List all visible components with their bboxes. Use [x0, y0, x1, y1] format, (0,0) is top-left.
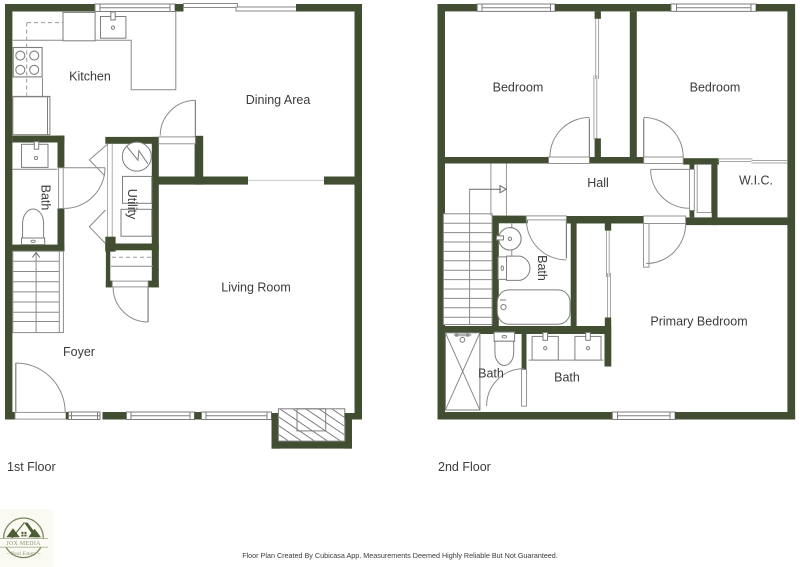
svg-text:Bath: Bath: [535, 255, 549, 281]
svg-text:Foyer: Foyer: [63, 345, 95, 359]
svg-text:Primary Bedroom: Primary Bedroom: [650, 315, 747, 329]
svg-text:2nd Floor: 2nd Floor: [438, 460, 491, 474]
svg-text:Bedroom: Bedroom: [493, 81, 544, 95]
svg-text:Bedroom: Bedroom: [690, 81, 741, 95]
svg-text:Bath: Bath: [478, 367, 504, 381]
svg-text:Bath: Bath: [554, 371, 580, 385]
svg-text:Utility: Utility: [125, 189, 139, 220]
svg-text:1st Floor: 1st Floor: [7, 460, 56, 474]
svg-text:Hall: Hall: [587, 176, 609, 190]
svg-text:JOX MEDIA: JOX MEDIA: [6, 541, 41, 547]
svg-text:W.I.C.: W.I.C.: [739, 174, 773, 188]
svg-text:Dining Area: Dining Area: [246, 93, 311, 107]
svg-text:Bath: Bath: [39, 185, 53, 211]
svg-text:Floor Plan Created By Cubicasa: Floor Plan Created By Cubicasa App. Meas…: [242, 551, 558, 560]
svg-text:~ Real Estate ~: ~ Real Estate ~: [7, 551, 41, 557]
svg-text:Kitchen: Kitchen: [69, 70, 111, 84]
svg-text:Living Room: Living Room: [221, 281, 290, 295]
